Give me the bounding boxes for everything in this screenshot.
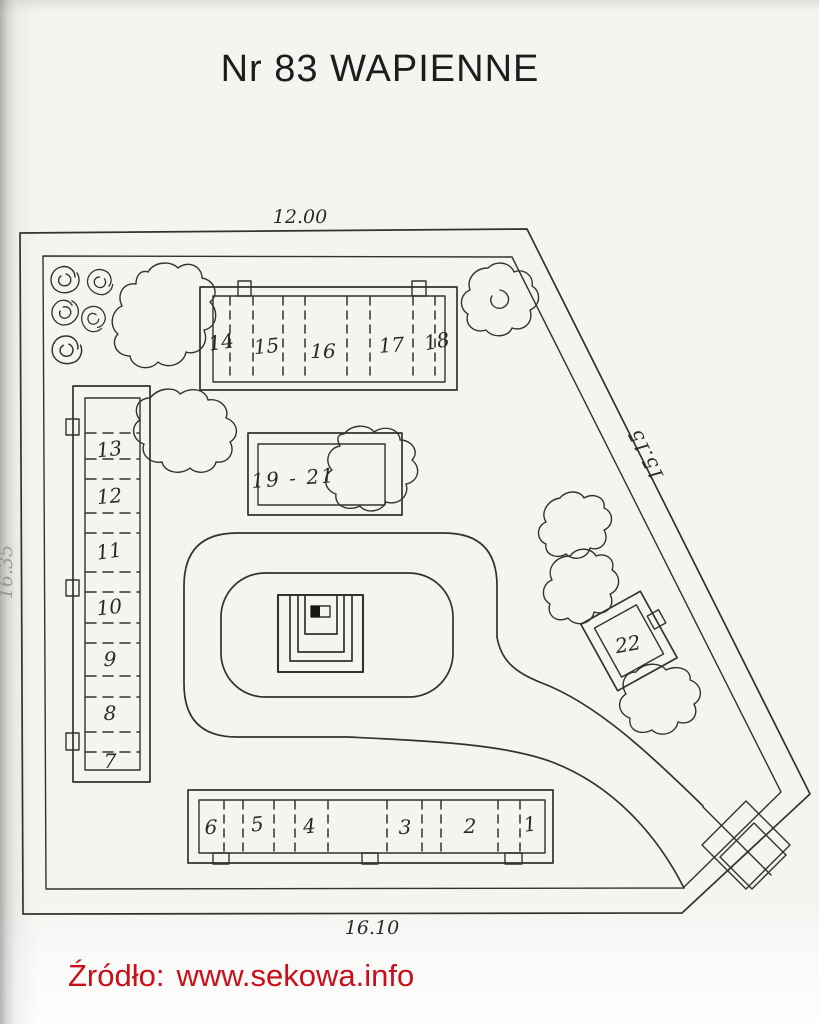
plot-number-14: 14 — [207, 328, 236, 355]
plot-number-22: 22 — [612, 630, 642, 658]
plot-number-1: 1 — [522, 811, 538, 837]
bush-spiral-icon — [80, 305, 108, 334]
grave-marker-tab — [238, 281, 251, 296]
plot-number-4: 4 — [301, 814, 317, 839]
dimension-top: 12.00 — [273, 206, 327, 228]
source-url-link[interactable]: www.sekowa.info — [175, 958, 414, 993]
dimension-bottom: 16.10 — [345, 917, 399, 939]
source-caption: Źródło:www.sekowa.info — [68, 958, 414, 993]
tree-icon — [461, 263, 538, 336]
plot-number-16: 16 — [310, 339, 336, 363]
grave-box-side: 22 — [581, 588, 683, 691]
plot-number-5: 5 — [250, 811, 265, 836]
tree-icon — [326, 426, 418, 511]
site-plan-drawing: Nr 83 WAPIENNE 12.00 16.10 16.35 15.15 1… — [0, 0, 819, 1024]
bush-spiral-icon — [83, 265, 118, 300]
tree-icon — [543, 549, 618, 623]
tree-icon — [620, 664, 701, 734]
source-label: Źródło: — [68, 958, 164, 993]
bush-spiral-icon — [51, 267, 79, 293]
walkway-outer-edge — [497, 637, 703, 806]
grave-row-top: 14 15 16 17 18 — [200, 281, 457, 390]
bush-spiral-icon — [47, 295, 83, 330]
walkway-inner-edge — [221, 573, 453, 697]
plot-number-10: 10 — [95, 594, 123, 621]
plot-number-2: 2 — [463, 814, 477, 838]
plot-number-3: 3 — [399, 815, 412, 839]
plot-number-13: 13 — [95, 436, 123, 463]
entrance-gate — [702, 801, 790, 889]
bushes — [47, 265, 118, 366]
plot-number-15: 15 — [253, 333, 280, 359]
plot-number-8: 8 — [104, 701, 117, 725]
dimension-left: 16.35 — [0, 545, 17, 599]
grave-box-middle: 19 - 21 — [248, 433, 402, 515]
plot-number-11: 11 — [95, 537, 124, 564]
central-monument — [278, 595, 363, 672]
grave-marker-tab — [412, 281, 426, 296]
plot-number-19-21: 19 - 21 — [251, 463, 337, 493]
page-title: Nr 83 WAPIENNE — [221, 48, 540, 90]
grave-row-bottom: 6 5 4 3 2 1 — [188, 790, 553, 864]
tree-icon — [539, 492, 612, 558]
scanned-cemetery-plan-page: Nr 83 WAPIENNE 12.00 16.10 16.35 15.15 1… — [0, 0, 819, 1024]
plot-number-7: 7 — [104, 749, 117, 773]
dimension-right: 15.15 — [625, 425, 669, 483]
gate-frame — [720, 823, 786, 889]
bush-spiral-icon — [50, 334, 84, 366]
plot-number-18: 18 — [422, 327, 451, 355]
gate-diagonal — [703, 807, 771, 875]
monument-step — [305, 595, 337, 634]
plot-number-17: 17 — [378, 332, 405, 358]
plot-number-6: 6 — [205, 815, 218, 839]
plot-number-9: 9 — [104, 647, 117, 671]
monument-step — [290, 595, 352, 661]
grave-column-left: 13 12 11 10 9 8 7 — [66, 386, 150, 782]
plot-number-12: 12 — [96, 483, 123, 509]
tree-icon — [134, 389, 237, 472]
monument-plaque-dark-half — [311, 606, 320, 617]
tree-icon — [491, 290, 509, 308]
